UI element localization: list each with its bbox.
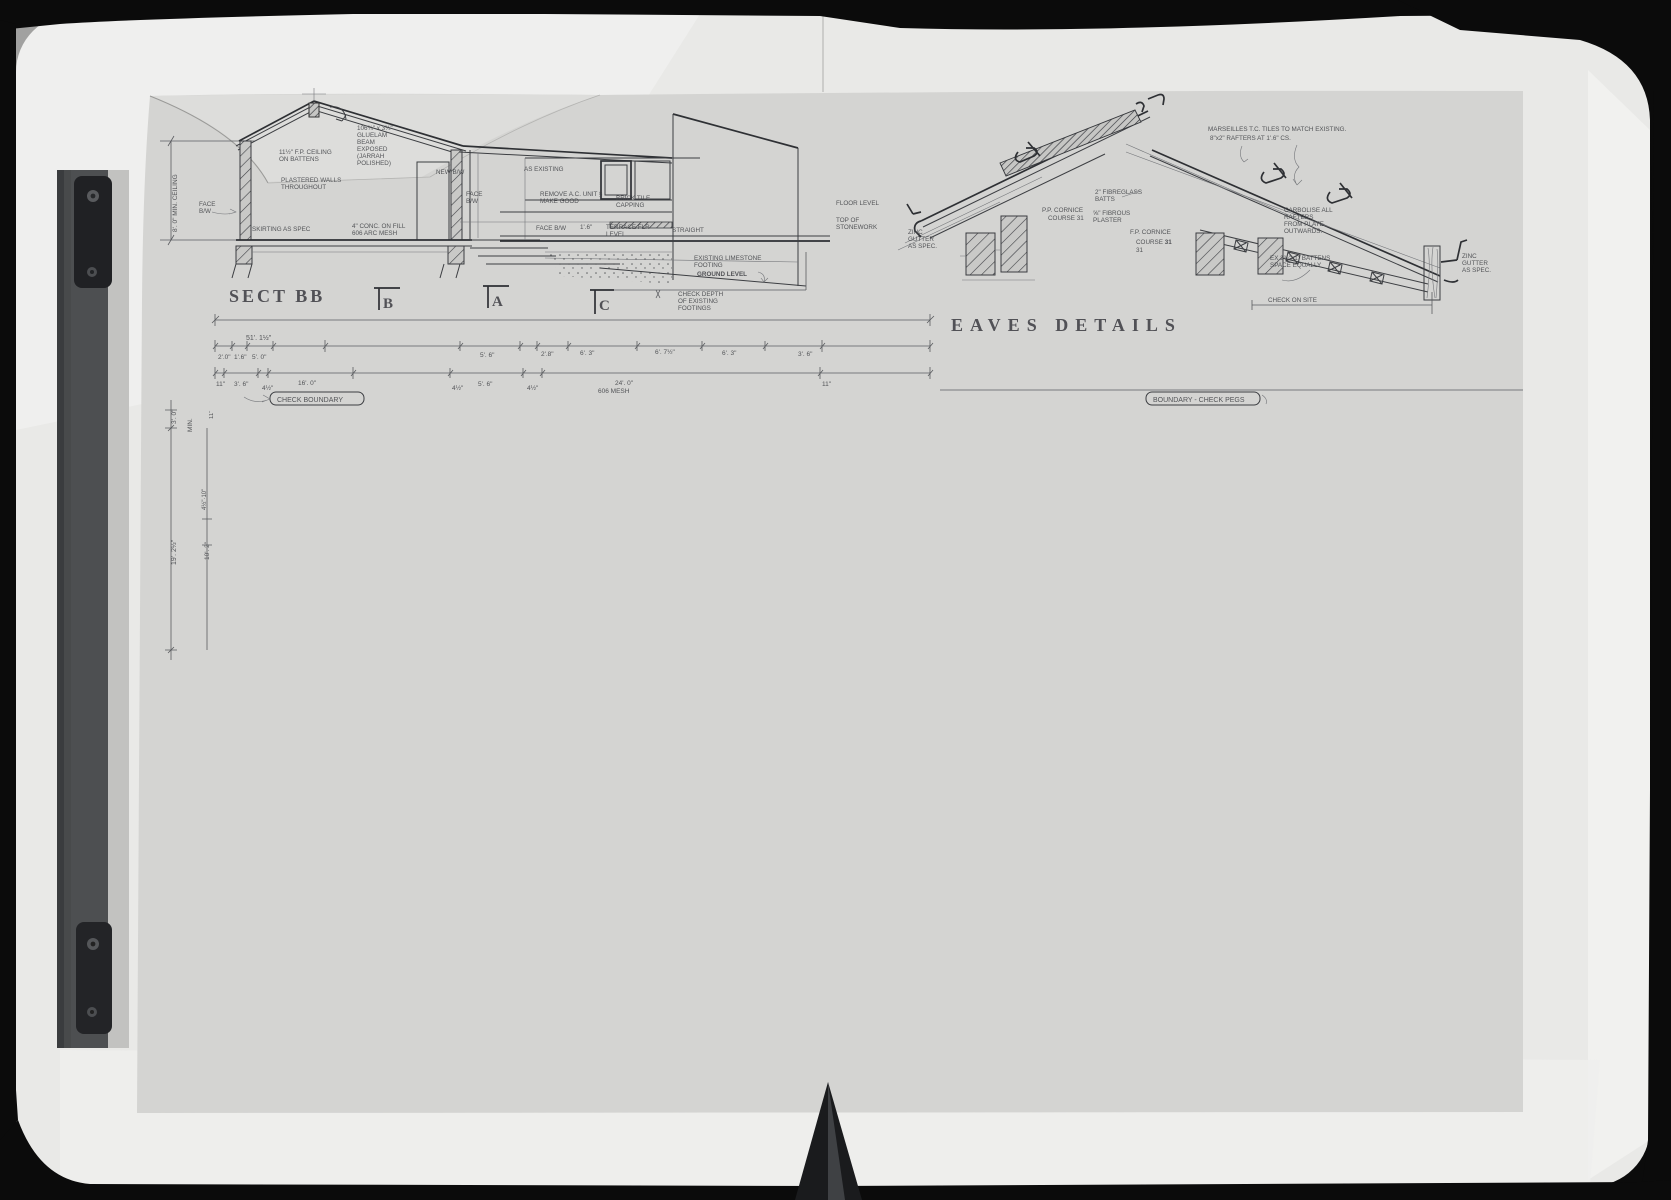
svg-text:F.P. CORNICE: F.P. CORNICE (1130, 229, 1171, 236)
svg-text:BATTS: BATTS (1095, 196, 1115, 203)
svg-text:FACE B/W: FACE B/W (536, 225, 566, 232)
svg-text:106¾" x 3¼": 106¾" x 3¼" (357, 125, 393, 132)
svg-text:4½": 4½" (452, 384, 464, 392)
svg-text:NEW B/W: NEW B/W (436, 169, 464, 176)
svg-text:CAPPING: CAPPING (616, 202, 644, 209)
svg-text:STONEWORK: STONEWORK (836, 224, 878, 231)
svg-text:TERRACE FLR: TERRACE FLR (606, 224, 650, 231)
svg-text:11": 11" (209, 411, 215, 419)
svg-text:4½": 4½" (262, 384, 274, 392)
svg-text:COURSE 31: COURSE 31 (1136, 239, 1172, 246)
svg-text:CARBOLISE ALL: CARBOLISE ALL (1284, 207, 1333, 214)
svg-text:BOUNDARY - CHECK PEGS: BOUNDARY - CHECK PEGS (1153, 397, 1245, 404)
svg-text:19'. 2½": 19'. 2½" (170, 539, 178, 565)
svg-text:COURSE 31: COURSE 31 (1048, 215, 1084, 222)
svg-text:AS EXISTING: AS EXISTING (524, 166, 564, 173)
svg-text:GLUELAM: GLUELAM (357, 132, 387, 139)
svg-text:BRICK TILE: BRICK TILE (616, 195, 650, 202)
svg-text:6'. 7½": 6'. 7½" (655, 348, 676, 356)
svg-text:PLASTERED WALLS: PLASTERED WALLS (281, 177, 341, 184)
svg-text:B/W: B/W (199, 208, 211, 215)
svg-text:MIN.: MIN. (187, 418, 194, 432)
svg-text:2'.8": 2'.8" (541, 351, 554, 358)
svg-text:8"x2" RAFTERS AT 1'.6" CS.: 8"x2" RAFTERS AT 1'.6" CS. (1210, 135, 1291, 142)
svg-text:51'. 1½": 51'. 1½" (246, 334, 272, 342)
svg-text:31: 31 (1136, 247, 1144, 254)
svg-text:⅝" FIBROUS: ⅝" FIBROUS (1093, 210, 1130, 217)
svg-text:PLASTER: PLASTER (1093, 217, 1122, 224)
svg-text:SPACE EQUALLY: SPACE EQUALLY (1270, 262, 1322, 269)
svg-text:3'. 0": 3'. 0" (171, 409, 178, 424)
svg-text:SECT BB: SECT BB (229, 286, 325, 306)
svg-text:AS SPEC.: AS SPEC. (908, 243, 937, 250)
svg-text:6'. 3": 6'. 3" (722, 350, 737, 357)
svg-text:GUTTER: GUTTER (1462, 260, 1488, 267)
svg-text:FACE: FACE (199, 201, 215, 208)
svg-text:11": 11" (822, 381, 832, 388)
svg-text:CHECK ON SITE: CHECK ON SITE (1268, 297, 1317, 304)
svg-text:TOP OF: TOP OF (836, 217, 859, 224)
svg-text:MAKE GOOD: MAKE GOOD (540, 198, 579, 205)
svg-text:3'. 6": 3'. 6" (798, 351, 813, 358)
svg-text:5'. 0": 5'. 0" (252, 354, 267, 361)
svg-text:GROUND LEVEL: GROUND LEVEL (697, 271, 747, 278)
svg-text:EAVES DETAILS: EAVES DETAILS (951, 315, 1182, 335)
svg-text:ZINC: ZINC (1462, 253, 1477, 260)
svg-text:3'. 6": 3'. 6" (234, 381, 249, 388)
svg-text:AS SPEC.: AS SPEC. (1462, 267, 1491, 274)
svg-text:POLISHED): POLISHED) (357, 160, 391, 167)
svg-text:FOOTINGS: FOOTINGS (678, 305, 711, 312)
svg-text:ON BATTENS: ON BATTENS (279, 156, 319, 163)
svg-text:P.P. CORNICE: P.P. CORNICE (1042, 207, 1083, 214)
svg-text:OUTWARDS.: OUTWARDS. (1284, 228, 1322, 235)
svg-text:LEVEL: LEVEL (606, 231, 626, 238)
svg-text:RAFTERS: RAFTERS (1284, 214, 1313, 221)
svg-text:4½": 4½" (527, 384, 539, 392)
svg-text:606 MESH: 606 MESH (598, 388, 630, 395)
svg-text:MARSEILLES T.C. TILES TO MATCH: MARSEILLES T.C. TILES TO MATCH EXISTING. (1208, 126, 1347, 133)
svg-text:4" CONC. ON FILL: 4" CONC. ON FILL (352, 223, 406, 230)
svg-text:C: C (599, 298, 610, 314)
svg-text:11": 11" (216, 381, 226, 388)
svg-text:B: B (383, 296, 393, 312)
svg-text:8'. 0" MIN. CEILING: 8'. 0" MIN. CEILING (172, 174, 179, 232)
svg-text:OF EXISTING: OF EXISTING (678, 298, 718, 305)
svg-text:SKIRTING AS SPEC: SKIRTING AS SPEC (252, 226, 311, 233)
svg-text:11½" F.P. CEILING: 11½" F.P. CEILING (279, 148, 332, 156)
svg-text:2'.0": 2'.0" (218, 354, 231, 361)
svg-text:6'. 3": 6'. 3" (580, 350, 595, 357)
svg-text:CHECK BOUNDARY: CHECK BOUNDARY (277, 397, 343, 404)
svg-text:FACE: FACE (466, 191, 482, 198)
svg-text:CHECK DEPTH: CHECK DEPTH (678, 291, 724, 298)
svg-text:FROM PLATE: FROM PLATE (1284, 221, 1324, 228)
svg-text:STRAIGHT: STRAIGHT (672, 227, 704, 234)
svg-text:REMOVE A.C. UNIT §: REMOVE A.C. UNIT § (540, 191, 603, 198)
svg-text:FOOTING: FOOTING (694, 262, 723, 269)
svg-text:5'. 6": 5'. 6" (480, 352, 495, 359)
svg-text:GUTTER: GUTTER (908, 236, 934, 243)
svg-text:EXPOSED: EXPOSED (357, 146, 388, 153)
svg-text:5'. 6": 5'. 6" (478, 381, 493, 388)
svg-text:FLOOR LEVEL: FLOOR LEVEL (836, 200, 880, 207)
svg-text:ZINC: ZINC (908, 229, 923, 236)
svg-text:B/W: B/W (466, 198, 478, 205)
svg-text:10'. 2": 10'. 2" (204, 541, 211, 560)
svg-text:EX 2¾"x1" BATTENS: EX 2¾"x1" BATTENS (1270, 255, 1330, 262)
svg-text:1'.6": 1'.6" (234, 354, 247, 361)
svg-text:24'. 0": 24'. 0" (615, 380, 634, 387)
svg-text:606 ARC MESH: 606 ARC MESH (352, 230, 398, 237)
svg-text:A: A (492, 294, 503, 310)
svg-text:EXISTING LIMESTONE: EXISTING LIMESTONE (694, 255, 761, 262)
svg-text:16'. 0": 16'. 0" (298, 380, 317, 387)
svg-text:THROUGHOUT: THROUGHOUT (281, 184, 326, 191)
svg-text:(JARRAH: (JARRAH (357, 153, 385, 160)
svg-text:1'.6": 1'.6" (580, 224, 592, 231)
svg-text:BEAM: BEAM (357, 139, 375, 146)
